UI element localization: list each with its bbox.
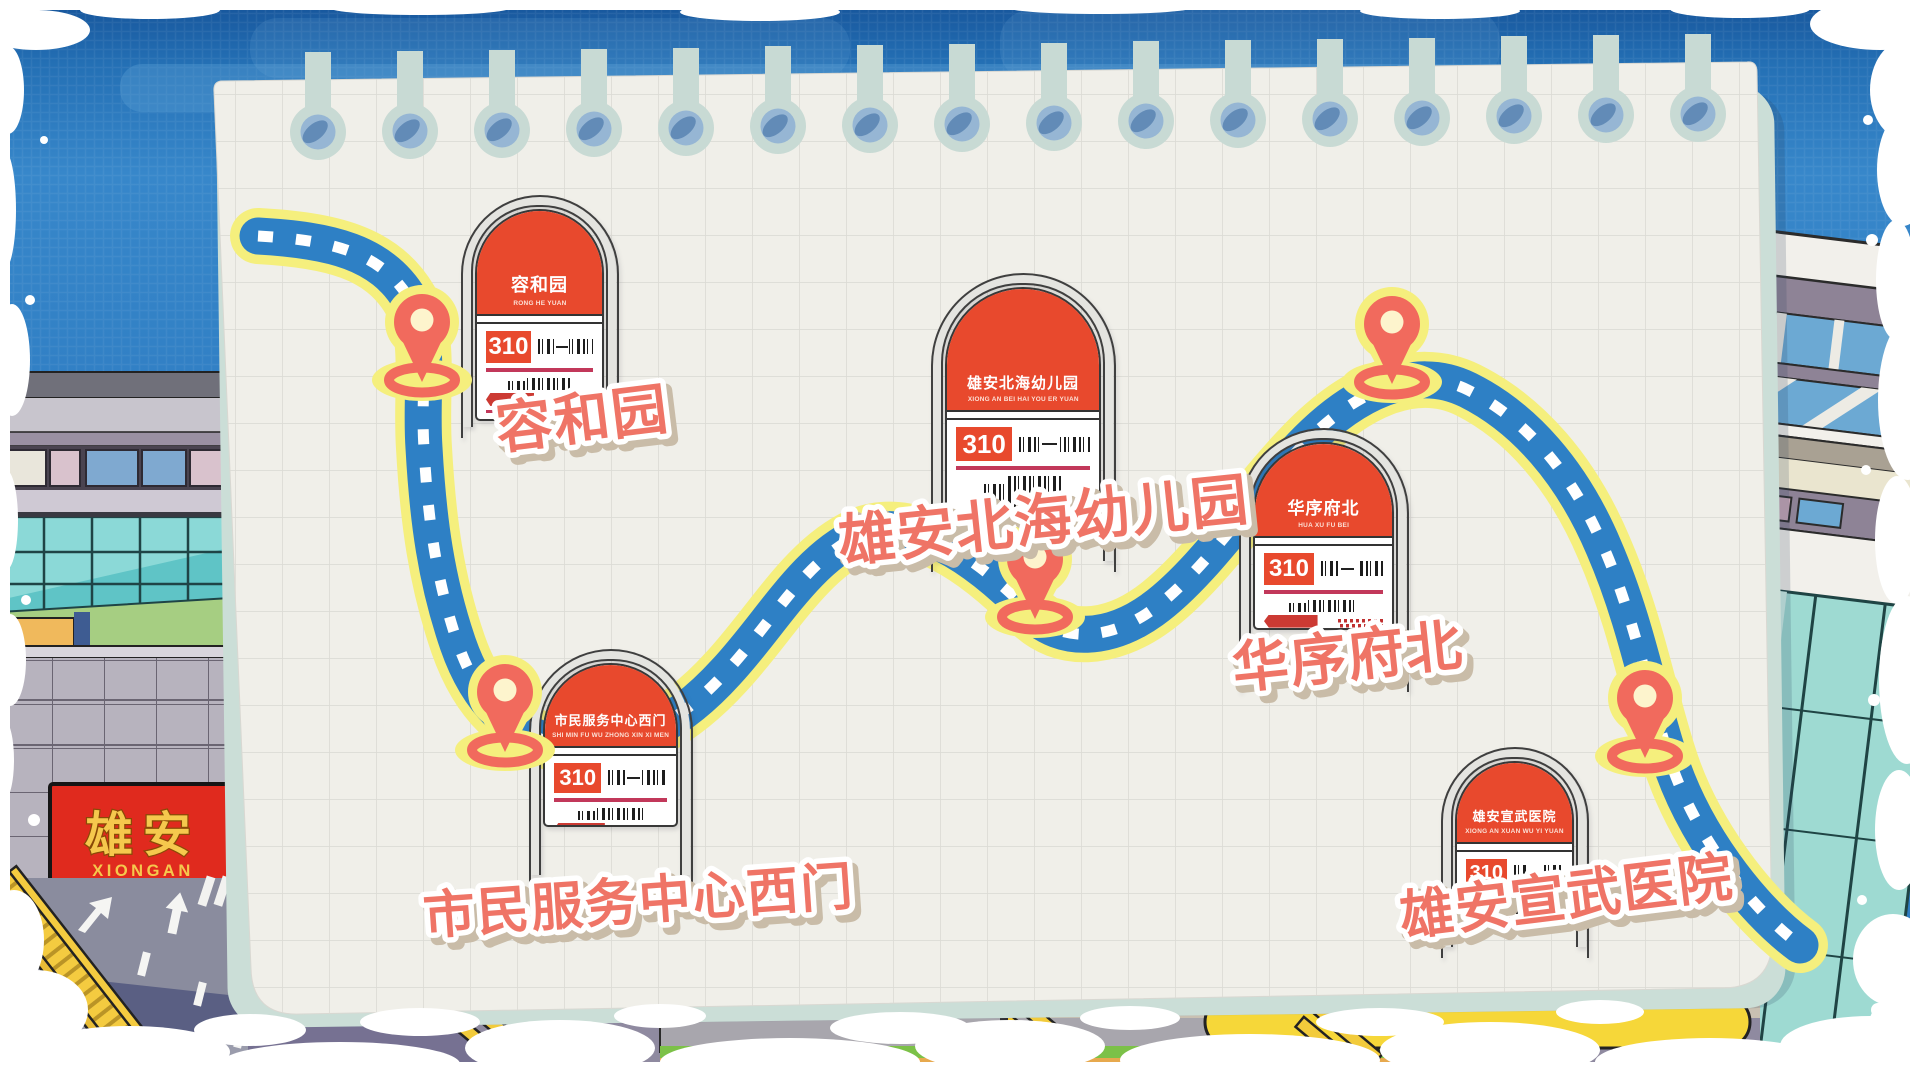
- crimson-line: [1466, 892, 1563, 896]
- sign-body: 310: [1457, 852, 1572, 919]
- sign-panel: 雄安宣武医院 XIONG AN XUAN WU YI YUAN 310: [1455, 761, 1574, 921]
- stop-name: 容和园: [511, 271, 568, 297]
- stop-pinyin: XIONG AN XUAN WU YI YUAN: [1465, 828, 1563, 834]
- barcode-row: [1019, 437, 1090, 452]
- stop-name: 雄安北海幼儿园: [967, 372, 1079, 393]
- red-arrow-tag: [1264, 615, 1318, 628]
- crimson-line: [554, 798, 667, 802]
- red-dots: [1039, 515, 1090, 524]
- crimson-line: [956, 466, 1090, 470]
- red-arrow-tag: [554, 823, 605, 827]
- xiongan-gate-sign: 雄安 XIONGAN: [50, 784, 236, 884]
- stop-pinyin: HUA XU FU BEI: [1298, 522, 1349, 528]
- sign-panel: 容和园 RONG HE YUAN 310: [475, 209, 604, 421]
- bus-stop-sign-huaxufubei: 华序府北 HUA XU FU BEI 310: [1241, 430, 1406, 673]
- route-number-badge: 310: [486, 331, 531, 363]
- stop-pinyin: SHI MIN FU WU ZHONG XIN XI MEN: [552, 732, 669, 738]
- crimson-line: [1264, 590, 1383, 594]
- barcode-block: [508, 378, 570, 390]
- sign-separator: [477, 314, 602, 324]
- stop-name: 雄安宣武医院: [1472, 806, 1556, 825]
- xiongan-sign-cn: 雄安: [85, 809, 201, 862]
- red-arrow-tag: [956, 511, 1016, 524]
- red-arrow-tag: [1466, 917, 1510, 921]
- sign-body: 310: [477, 324, 602, 419]
- bus-stop-sign-rongheyuan: 容和园 RONG HE YUAN 310: [463, 197, 616, 419]
- stop-name: 市民服务中心西门: [554, 710, 666, 729]
- red-dots: [552, 397, 593, 406]
- crimson-line: [956, 528, 1090, 531]
- bus-stop-sign-beihai-kindergarten: 雄安北海幼儿园 XIONG AN BEI HAI YOU ER YUAN 310: [933, 275, 1113, 553]
- stop-name: 华序府北: [1288, 494, 1360, 519]
- stop-pinyin: RONG HE YUAN: [513, 300, 566, 306]
- stop-pinyin: XIONG AN BEI HAI YOU ER YUAN: [967, 396, 1078, 402]
- bus-stop-sign-citizen-center-west: 市民服务中心西门 SHI MIN FU WU ZHONG XIN XI MEN …: [531, 651, 690, 867]
- route-number-badge: 310: [554, 763, 601, 793]
- sign-separator: [1457, 842, 1572, 852]
- crimson-line: [486, 410, 593, 413]
- barcode-block: [984, 476, 1062, 508]
- sign-body: 310: [947, 420, 1099, 537]
- barcode-block: [578, 808, 644, 820]
- bus-stop-sign-xuanwu-hospital: 雄安宣武医院 XIONG AN XUAN WU YI YUAN 310: [1443, 749, 1586, 939]
- sign-panel: 雄安北海幼儿园 XIONG AN BEI HAI YOU ER YUAN 310: [945, 287, 1101, 539]
- barcode-block: [1486, 902, 1542, 914]
- route-number-badge: 310: [956, 427, 1012, 461]
- barcode-block: [1289, 600, 1358, 612]
- route-number-badge: 310: [1264, 553, 1314, 585]
- red-arrow-tag: [486, 393, 534, 406]
- barcode-row: [538, 339, 593, 354]
- sign-panel: 市民服务中心西门 SHI MIN FU WU ZHONG XIN XI MEN …: [543, 663, 678, 827]
- xiongan-sign-en: XIONGAN: [92, 862, 194, 880]
- barcode-row: [1514, 865, 1563, 880]
- crimson-line: [486, 368, 593, 372]
- sign-separator: [1255, 536, 1392, 546]
- sign-separator: [947, 410, 1099, 420]
- route-number-badge: 310: [1466, 859, 1507, 887]
- sign-separator: [545, 746, 676, 756]
- red-dots: [1338, 619, 1383, 628]
- sign-panel: 华序府北 HUA XU FU BEI 310: [1253, 442, 1394, 630]
- barcode-row: [608, 770, 667, 785]
- sign-header: 容和园 RONG HE YUAN: [477, 211, 602, 314]
- sign-header: 雄安北海幼儿园 XIONG AN BEI HAI YOU ER YUAN: [947, 289, 1099, 410]
- scene: 雄安 XIONGAN: [0, 0, 1920, 1080]
- barcode-row: [1321, 561, 1383, 576]
- sign-body: 310: [545, 756, 676, 825]
- sign-body: 310: [1255, 546, 1392, 628]
